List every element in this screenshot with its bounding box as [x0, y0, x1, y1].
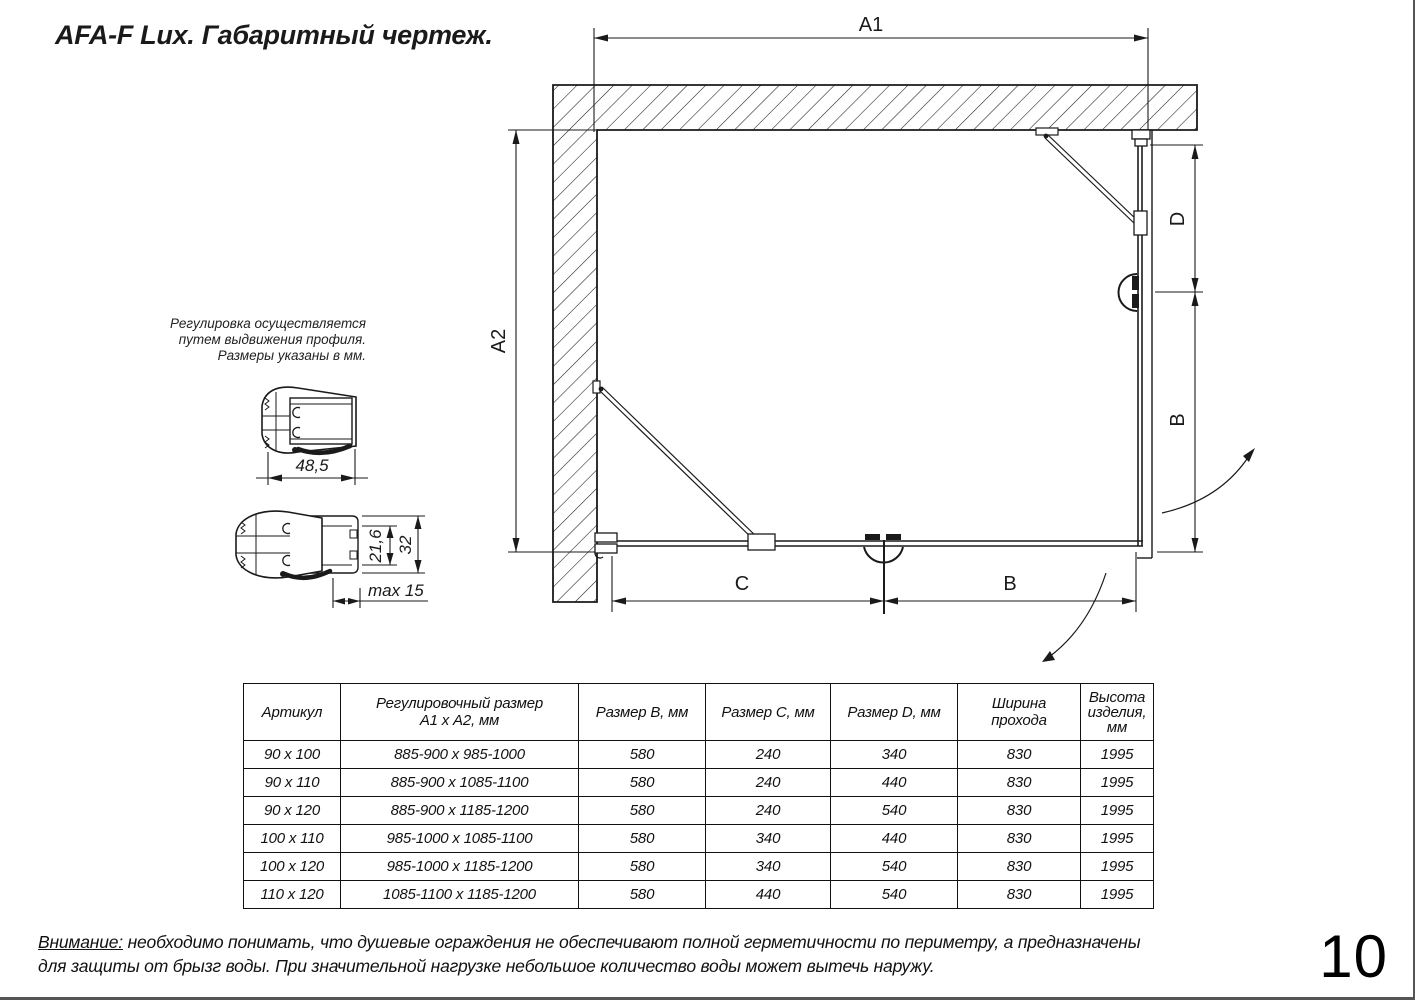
cell-d: 440 — [831, 825, 958, 853]
dimension-d-b — [1150, 145, 1203, 552]
header-adjust-size: Регулировочный размер А1 х А2, мм — [341, 684, 579, 741]
warning-line1-rest: необходимо понимать, что душевые огражде… — [123, 932, 1140, 952]
label-c: C — [735, 573, 749, 595]
label-b-side: B — [1167, 413, 1189, 426]
cell-d: 540 — [831, 881, 958, 909]
cell-pass: 830 — [958, 741, 1081, 769]
regulation-note-line1: Регулировка осуществляется — [150, 316, 366, 332]
label-21-6: 21,6 — [366, 529, 385, 564]
cell-height: 1995 — [1081, 741, 1154, 769]
header-pass-width-line1: Ширина — [958, 695, 1080, 712]
door-open-left — [593, 381, 775, 550]
header-height-line2: изделия, — [1081, 705, 1153, 720]
label-48-5: 48,5 — [295, 456, 329, 475]
warning-line1: Внимание: необходимо понимать, что душев… — [38, 930, 1140, 954]
cell-height: 1995 — [1081, 769, 1154, 797]
warning-text: Внимание: необходимо понимать, что душев… — [38, 930, 1140, 978]
cell-height: 1995 — [1081, 881, 1154, 909]
cell-b: 580 — [579, 825, 706, 853]
table-row: 100 x 120 985-1000 x 1185-1200 580 340 5… — [244, 853, 1154, 881]
cell-c: 240 — [706, 741, 831, 769]
wall-bracket — [595, 533, 617, 558]
page: AFA-F Lux. Габаритный чертеж. A1 A2 — [0, 0, 1415, 1000]
header-size-b: Размер В, мм — [579, 684, 706, 741]
header-pass-width-line2: прохода — [958, 712, 1080, 729]
header-height: Высота изделия, мм — [1081, 684, 1154, 741]
door-swing-arcs — [1042, 448, 1255, 662]
cell-adjust: 985-1000 x 1085-1100 — [341, 825, 579, 853]
cell-height: 1995 — [1081, 825, 1154, 853]
cell-height: 1995 — [1081, 797, 1154, 825]
side-glass-panel — [1132, 130, 1152, 558]
cell-d: 540 — [831, 797, 958, 825]
page-number: 10 — [1319, 922, 1388, 991]
cell-b: 580 — [579, 853, 706, 881]
label-max-15: max 15 — [368, 581, 424, 600]
cell-article: 90 x 110 — [244, 769, 341, 797]
label-a1: A1 — [859, 14, 883, 36]
label-b-front: B — [1003, 573, 1016, 595]
header-size-c: Размер С, мм — [706, 684, 831, 741]
cell-adjust: 985-1000 x 1185-1200 — [341, 853, 579, 881]
cell-b: 580 — [579, 797, 706, 825]
cell-d: 540 — [831, 853, 958, 881]
door-open-right — [1036, 128, 1147, 235]
cell-c: 240 — [706, 769, 831, 797]
spec-table: Артикул Регулировочный размер А1 х А2, м… — [243, 683, 1154, 909]
cell-adjust: 885-900 x 985-1000 — [341, 741, 579, 769]
cell-c: 440 — [706, 881, 831, 909]
front-glass-panel — [608, 541, 1143, 546]
side-door-handle — [1119, 274, 1204, 311]
cell-pass: 830 — [958, 769, 1081, 797]
header-height-line1: Высота — [1081, 690, 1153, 705]
label-32: 32 — [396, 535, 415, 554]
cell-adjust: 885-900 x 1085-1100 — [341, 769, 579, 797]
profile-section-1 — [262, 387, 356, 453]
table-header-row: Артикул Регулировочный размер А1 х А2, м… — [244, 684, 1154, 741]
cell-b: 580 — [579, 769, 706, 797]
regulation-note-line3: Размеры указаны в мм. — [150, 348, 366, 364]
cell-article: 90 x 100 — [244, 741, 341, 769]
cell-pass: 830 — [958, 797, 1081, 825]
cell-article: 100 x 110 — [244, 825, 341, 853]
cell-adjust: 885-900 x 1185-1200 — [341, 797, 579, 825]
label-d: D — [1167, 212, 1189, 226]
table-row: 90 x 120 885-900 x 1185-1200 580 240 540… — [244, 797, 1154, 825]
header-adjust-size-line1: Регулировочный размер — [341, 695, 578, 712]
cell-pass: 830 — [958, 881, 1081, 909]
table-row: 100 x 110 985-1000 x 1085-1100 580 340 4… — [244, 825, 1154, 853]
cell-height: 1995 — [1081, 853, 1154, 881]
warning-line2: для защиты от брызг воды. При значительн… — [38, 954, 1140, 978]
cell-c: 340 — [706, 853, 831, 881]
cell-pass: 830 — [958, 853, 1081, 881]
cell-b: 580 — [579, 881, 706, 909]
warning-label: Внимание: — [38, 932, 123, 952]
walls-hatched — [553, 85, 1197, 602]
table-row: 90 x 110 885-900 x 1085-1100 580 240 440… — [244, 769, 1154, 797]
header-adjust-size-line2: А1 х А2, мм — [341, 712, 578, 729]
regulation-note: Регулировка осуществляется путем выдвиже… — [150, 316, 366, 364]
cell-article: 90 x 120 — [244, 797, 341, 825]
regulation-note-line2: путем выдвижения профиля. — [150, 332, 366, 348]
header-height-line3: мм — [1081, 720, 1153, 735]
cell-d: 340 — [831, 741, 958, 769]
cell-article: 110 x 120 — [244, 881, 341, 909]
cell-b: 580 — [579, 741, 706, 769]
label-a2: A2 — [488, 329, 510, 353]
table-row: 90 x 100 885-900 x 985-1000 580 240 340 … — [244, 741, 1154, 769]
header-article: Артикул — [244, 684, 341, 741]
cell-article: 100 x 120 — [244, 853, 341, 881]
cell-pass: 830 — [958, 825, 1081, 853]
cell-c: 240 — [706, 797, 831, 825]
cell-d: 440 — [831, 769, 958, 797]
cell-c: 340 — [706, 825, 831, 853]
profile-section-2 — [236, 511, 358, 578]
table-row: 110 x 120 1085-1100 x 1185-1200 580 440 … — [244, 881, 1154, 909]
cell-adjust: 1085-1100 x 1185-1200 — [341, 881, 579, 909]
header-size-d: Размер D, мм — [831, 684, 958, 741]
header-pass-width: Ширина прохода — [958, 684, 1081, 741]
